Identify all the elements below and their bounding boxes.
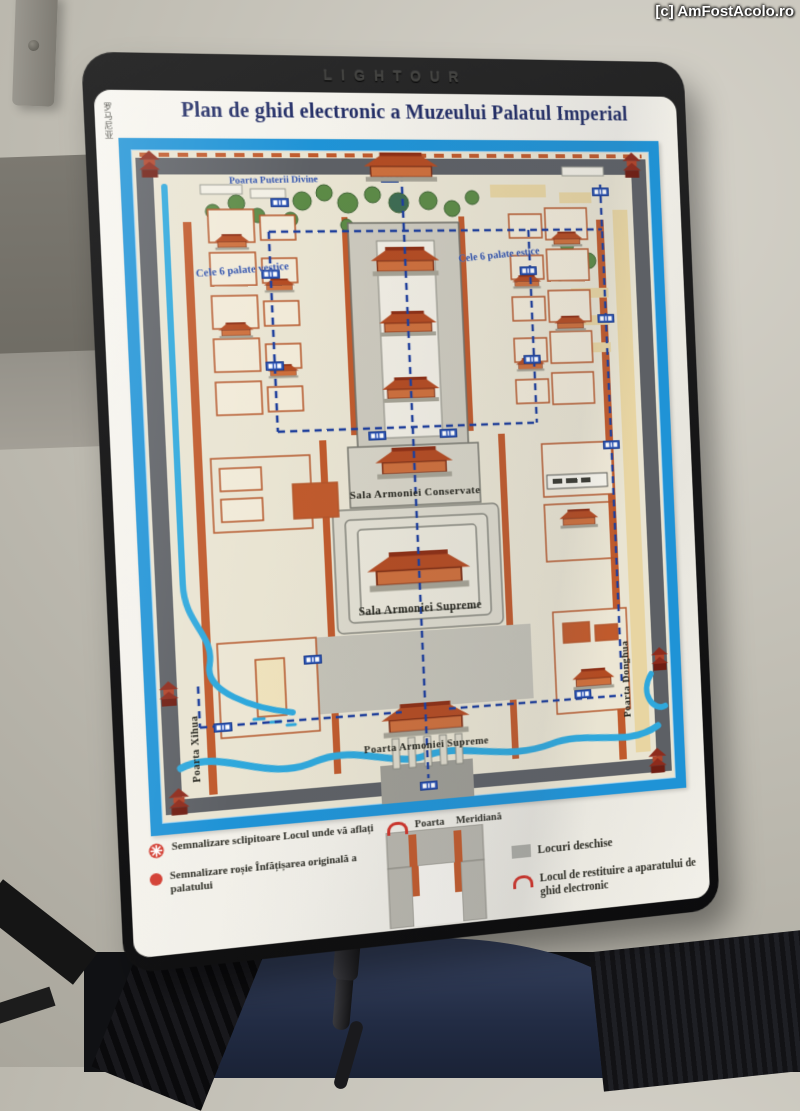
red-dot-icon <box>149 873 162 887</box>
legend-item-open-areas: Locuri deschise <box>511 827 698 860</box>
ground-object <box>0 879 98 984</box>
device-return-sign <box>547 473 608 489</box>
chinese-side-label: 罗马尼亚 <box>102 102 116 140</box>
legend-item-red: Semnalizare roșie Înfățișarea originală … <box>149 848 395 899</box>
screw-icon <box>28 40 39 51</box>
guide-card: Plan de ghid electronic a Muzeului Palat… <box>93 90 710 959</box>
headphones-return-icon <box>513 874 534 889</box>
wall-bracket <box>12 0 58 107</box>
legend-text-return-place: Locul de restituire a aparatului de ghid… <box>539 855 702 900</box>
east-palaces-block <box>508 208 594 406</box>
open-area-swatch <box>511 844 531 859</box>
headphones-icon <box>387 821 408 836</box>
label-meridian-gate: Poarta Meridiană <box>414 810 501 831</box>
audio-guide-device: LIGHTOUR Plan de ghid electronic a Muzeu… <box>81 52 720 975</box>
bag-mesh <box>589 928 800 1091</box>
starburst-icon <box>148 842 165 859</box>
ground-object-small <box>0 987 56 1026</box>
palace-map-drawing <box>131 149 676 824</box>
legend-item-return-place: Locul de restituire a aparatului de ghid… <box>513 855 703 902</box>
legend-text-red: Semnalizare roșie Înfățișarea originală … <box>170 848 396 897</box>
meridian-gate-structure <box>380 823 492 929</box>
watermark: [c] AmFostAcolo.ro <box>655 3 794 20</box>
page-title: Plan de ghid electronic a Muzeului Palat… <box>130 98 671 126</box>
brand-label: LIGHTOUR <box>81 63 684 88</box>
palace-map: Poarta Puterii Divine Cele 6 palate vest… <box>118 138 686 836</box>
legend-text-open-areas: Locuri deschise <box>537 835 613 857</box>
